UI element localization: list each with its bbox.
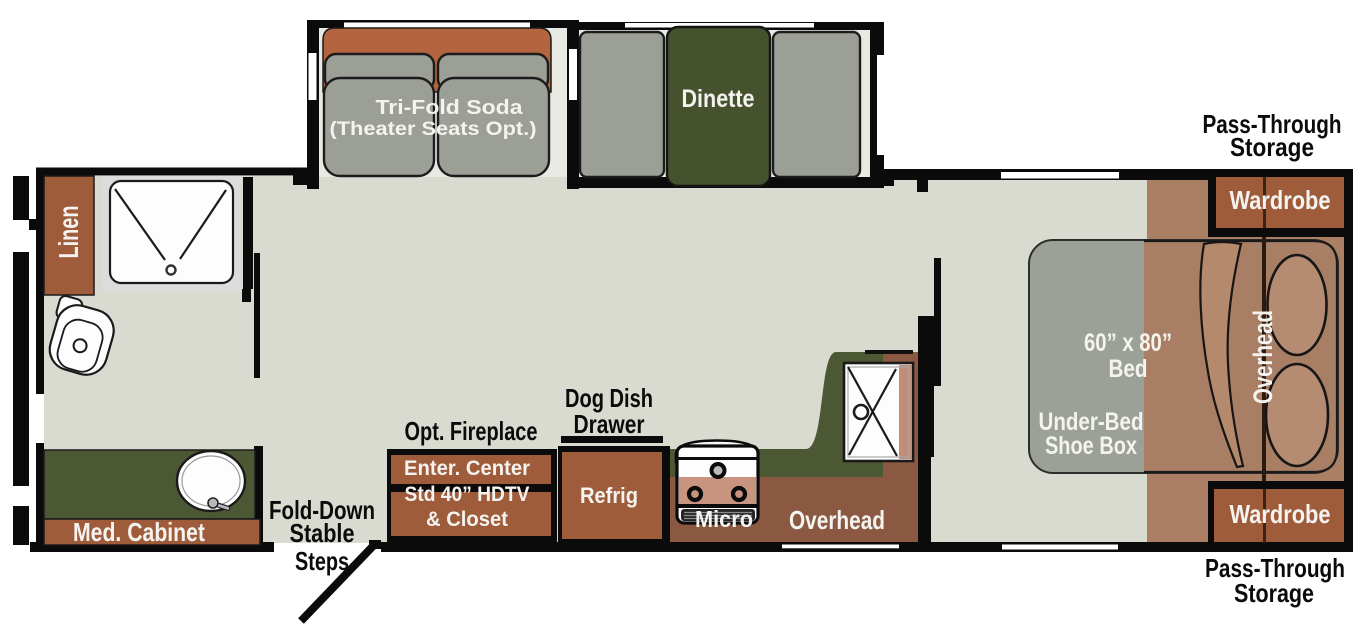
svg-text:& Closet: & Closet (426, 507, 508, 531)
svg-text:Linen: Linen (53, 206, 84, 259)
svg-text:60” x 80”: 60” x 80” (1084, 329, 1172, 357)
svg-text:Stable: Stable (290, 518, 355, 548)
svg-text:Bed: Bed (1109, 355, 1148, 383)
svg-text:Refrig: Refrig (580, 483, 638, 508)
svg-text:Overhead: Overhead (1248, 310, 1278, 404)
svg-text:Dinette: Dinette (682, 85, 755, 113)
svg-text:(Theater Seats Opt.): (Theater Seats Opt.) (330, 118, 537, 140)
svg-text:Shoe Box: Shoe Box (1045, 432, 1137, 460)
svg-text:Enter. Center: Enter. Center (404, 456, 531, 480)
svg-text:Storage: Storage (1234, 578, 1314, 608)
svg-text:Drawer: Drawer (574, 409, 645, 439)
svg-text:Wardrobe: Wardrobe (1230, 499, 1331, 529)
svg-text:Tri-Fold Soda: Tri-Fold Soda (376, 97, 524, 119)
svg-text:Med. Cabinet: Med. Cabinet (73, 517, 205, 547)
svg-text:Micro: Micro (695, 506, 753, 532)
svg-text:Wardrobe: Wardrobe (1230, 185, 1331, 215)
svg-text:Steps: Steps (295, 546, 349, 576)
svg-text:Overhead: Overhead (789, 505, 885, 535)
svg-text:Opt. Fireplace: Opt. Fireplace (405, 416, 538, 446)
svg-text:Storage: Storage (1230, 132, 1314, 162)
svg-text:Std 40” HDTV: Std 40” HDTV (405, 482, 531, 506)
